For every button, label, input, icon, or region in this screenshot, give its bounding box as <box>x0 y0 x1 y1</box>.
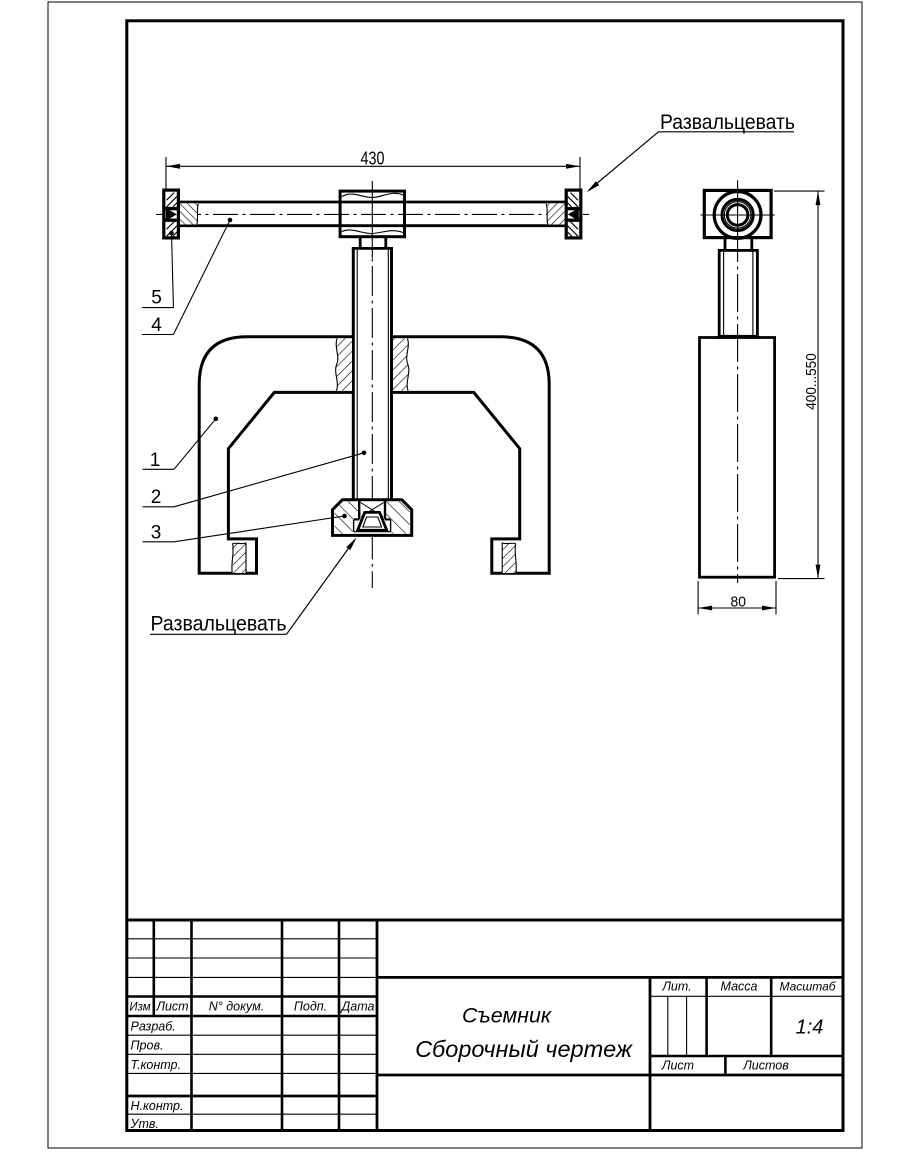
svg-text:400...550: 400...550 <box>803 353 820 410</box>
svg-text:2: 2 <box>151 487 162 508</box>
svg-text:5: 5 <box>151 288 162 309</box>
svg-text:Подп.: Подп. <box>294 1000 327 1014</box>
svg-text:Пров.: Пров. <box>131 1039 164 1053</box>
svg-text:Т.контр.: Т.контр. <box>131 1058 181 1072</box>
svg-text:80: 80 <box>731 593 747 610</box>
svg-text:Дата: Дата <box>340 1000 375 1014</box>
svg-text:Развальцевать: Развальцевать <box>660 111 795 134</box>
svg-text:N° докум.: N° докум. <box>209 1000 265 1014</box>
svg-text:3: 3 <box>151 522 162 543</box>
svg-text:430: 430 <box>361 149 385 169</box>
svg-text:Листов: Листов <box>742 1059 789 1073</box>
svg-text:Масса: Масса <box>721 980 758 994</box>
svg-text:Сборочный чертеж: Сборочный чертеж <box>415 1036 633 1062</box>
svg-text:Изм: Изм <box>129 1002 150 1014</box>
svg-text:Н.контр.: Н.контр. <box>131 1099 184 1113</box>
svg-text:Лист: Лист <box>661 1059 694 1073</box>
svg-text:Разраб.: Разраб. <box>131 1020 176 1034</box>
svg-text:4: 4 <box>151 315 162 336</box>
svg-text:Масштаб: Масштаб <box>779 980 836 994</box>
svg-text:Лит.: Лит. <box>661 980 691 994</box>
svg-text:1:4: 1:4 <box>796 1017 824 1039</box>
svg-text:Утв.: Утв. <box>130 1117 159 1131</box>
svg-text:Съемник: Съемник <box>462 1004 552 1028</box>
svg-text:Развальцевать: Развальцевать <box>151 613 287 636</box>
svg-text:1: 1 <box>150 450 161 471</box>
svg-text:Лист: Лист <box>155 1000 188 1014</box>
